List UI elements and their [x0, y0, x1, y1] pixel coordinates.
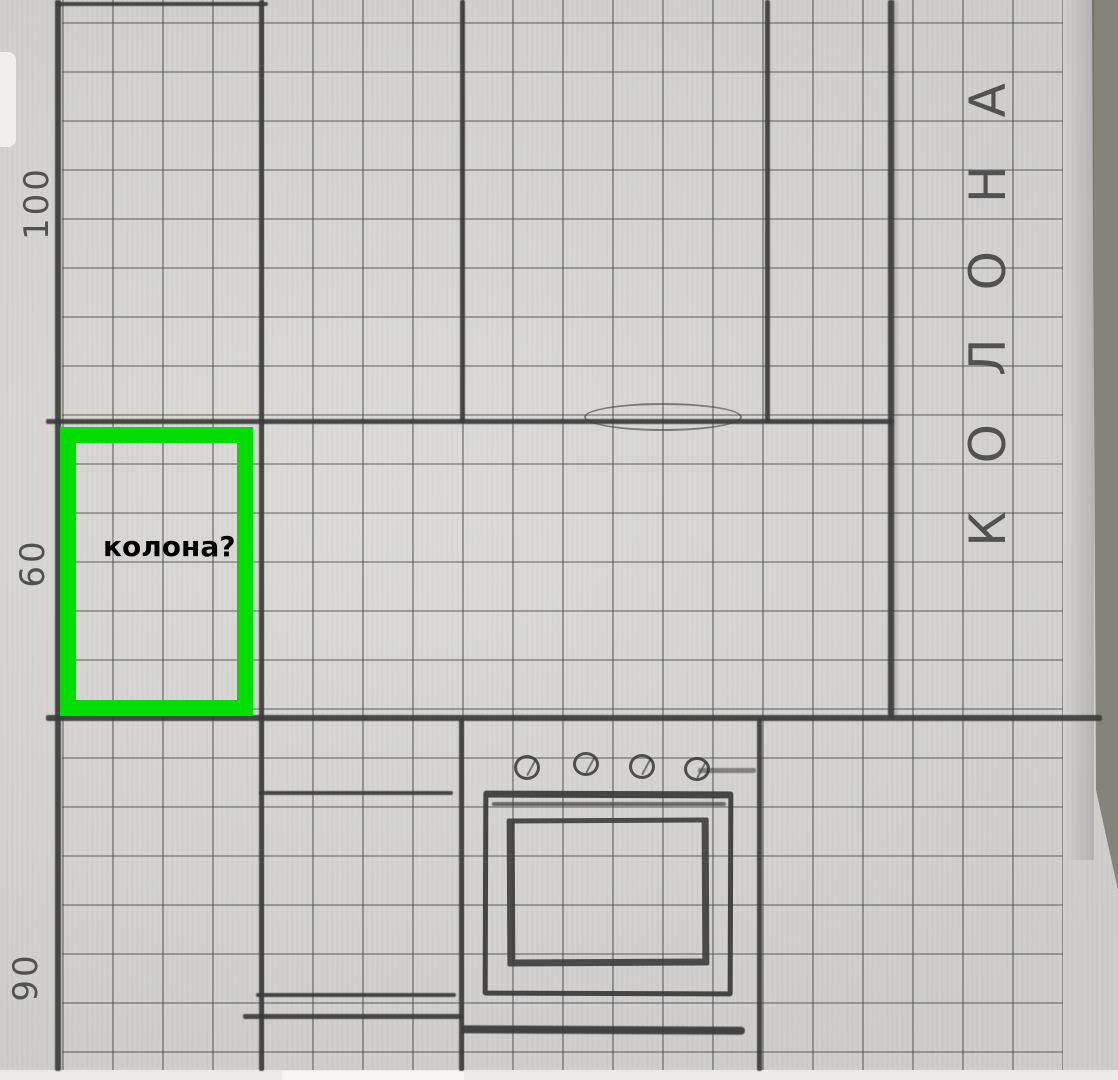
paper-left-edge-highlight: [0, 52, 16, 147]
cabinet-bottom-line-1: [256, 993, 456, 997]
stove-door: [507, 817, 710, 966]
paper-right-edge-shade: [1066, 0, 1094, 860]
measurement-label-60: 60: [11, 513, 55, 613]
stove-knob: [514, 755, 540, 780]
sketch-top-edge-line: [56, 2, 268, 6]
sketch-oval-mark: [584, 403, 742, 431]
sketch-vertical-line-3-upper: [765, 0, 770, 423]
column-annotation-label: колона?: [103, 530, 263, 566]
sketch-vertical-line-4-column-wall: [888, 0, 894, 718]
paper-bottom-edge-highlight: [282, 1071, 464, 1080]
stove-top-double-line: [492, 802, 726, 806]
cabinet-top-line: [259, 791, 453, 795]
cabinet-bottom-line-2: [243, 1014, 463, 1019]
sketch-vertical-line-2-upper: [460, 0, 465, 423]
paper-bottom-edge: [0, 1070, 1118, 1080]
stove-handle-line: [461, 1025, 745, 1034]
wall-label-kolona: КОЛОНА: [948, 6, 1028, 576]
measurement-label-90: 90: [4, 927, 48, 1027]
stove-knob: [629, 754, 655, 779]
column-highlight-box: [60, 427, 253, 716]
stove-knob: [573, 752, 599, 776]
stove-knob: [684, 757, 710, 781]
measurement-label-100: 100: [15, 138, 59, 268]
sketch-horizontal-line-upper: [46, 419, 894, 424]
sketch-vertical-line-3-lower: [757, 718, 762, 1071]
